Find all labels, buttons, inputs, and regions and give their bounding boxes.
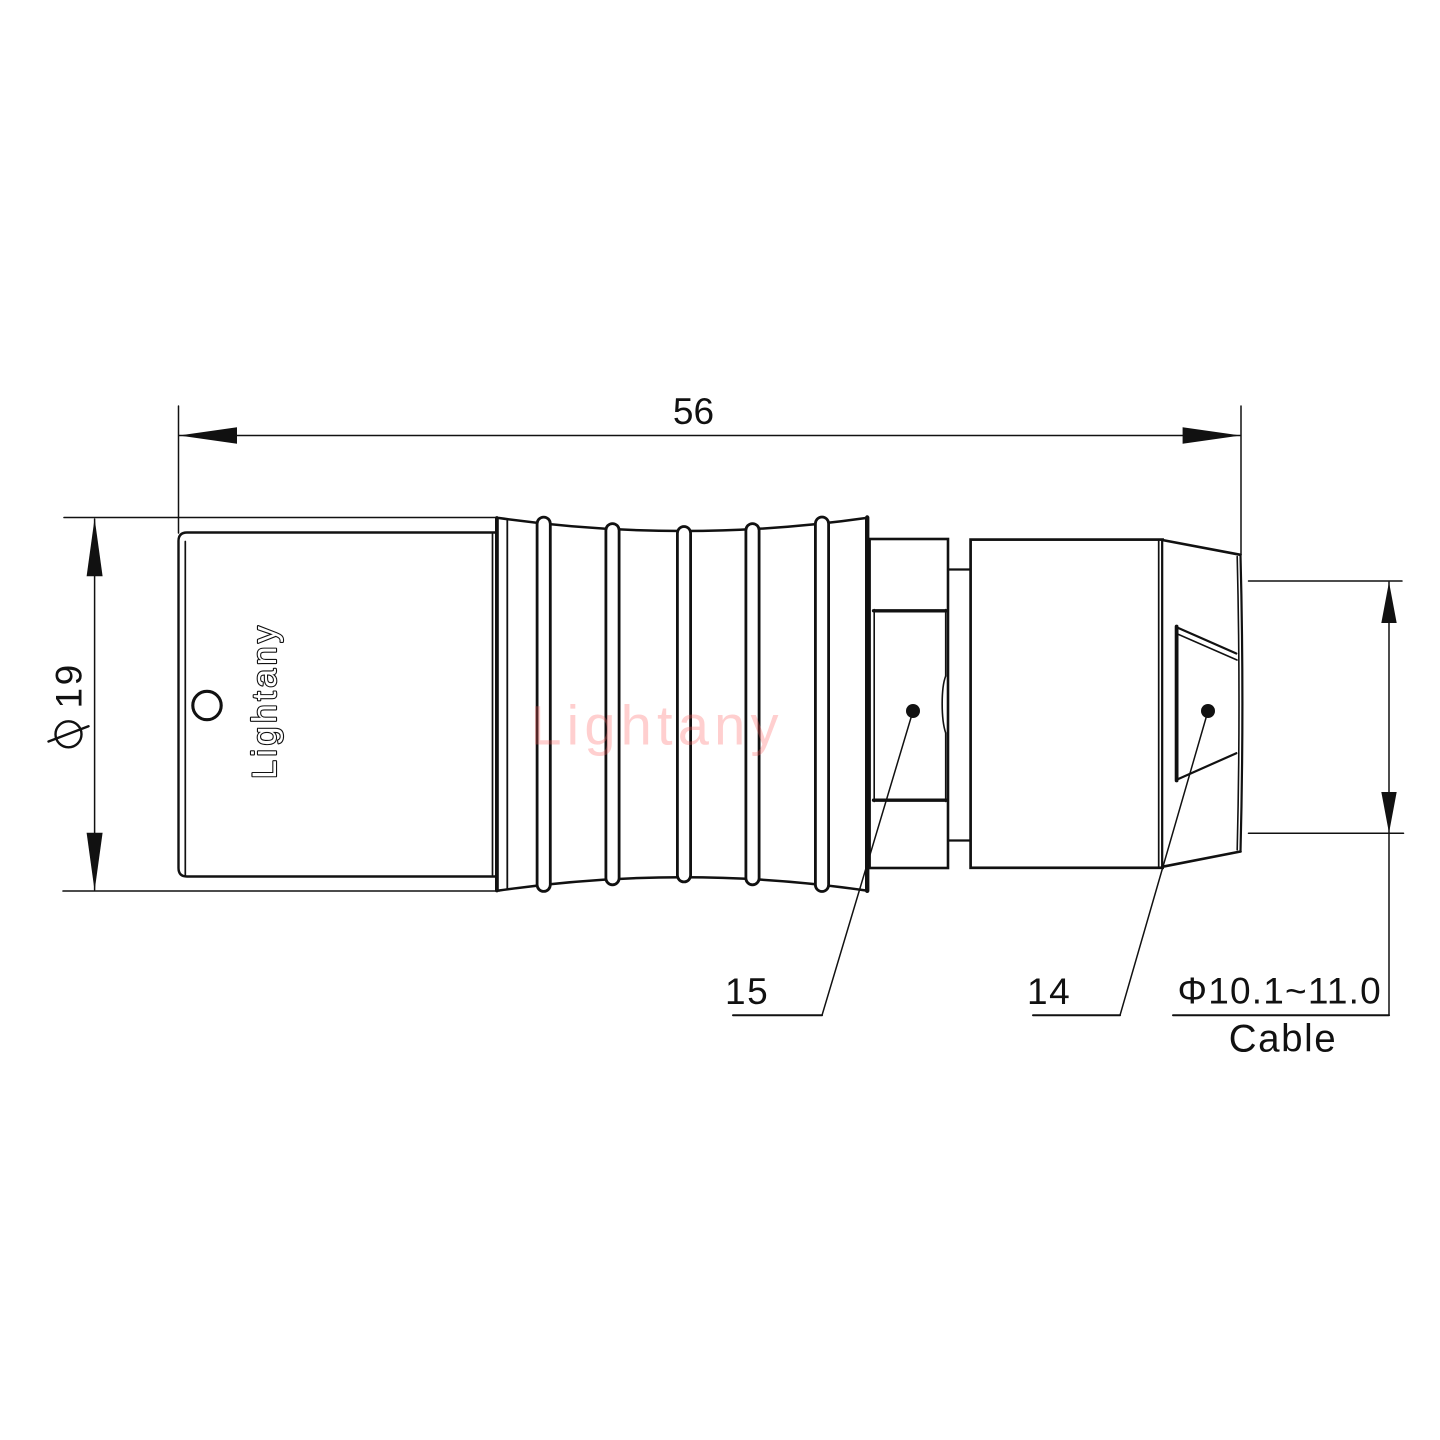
svg-text:14: 14 — [1027, 971, 1071, 1012]
svg-text:Φ10.1~11.0: Φ10.1~11.0 — [1178, 970, 1382, 1011]
svg-text:56: 56 — [673, 391, 714, 432]
svg-text:Cable: Cable — [1229, 1017, 1338, 1060]
svg-text:Lightany: Lightany — [530, 694, 783, 757]
svg-text:Lightany: Lightany — [246, 622, 284, 779]
svg-text:19: 19 — [49, 662, 90, 708]
svg-text:15: 15 — [725, 971, 769, 1012]
